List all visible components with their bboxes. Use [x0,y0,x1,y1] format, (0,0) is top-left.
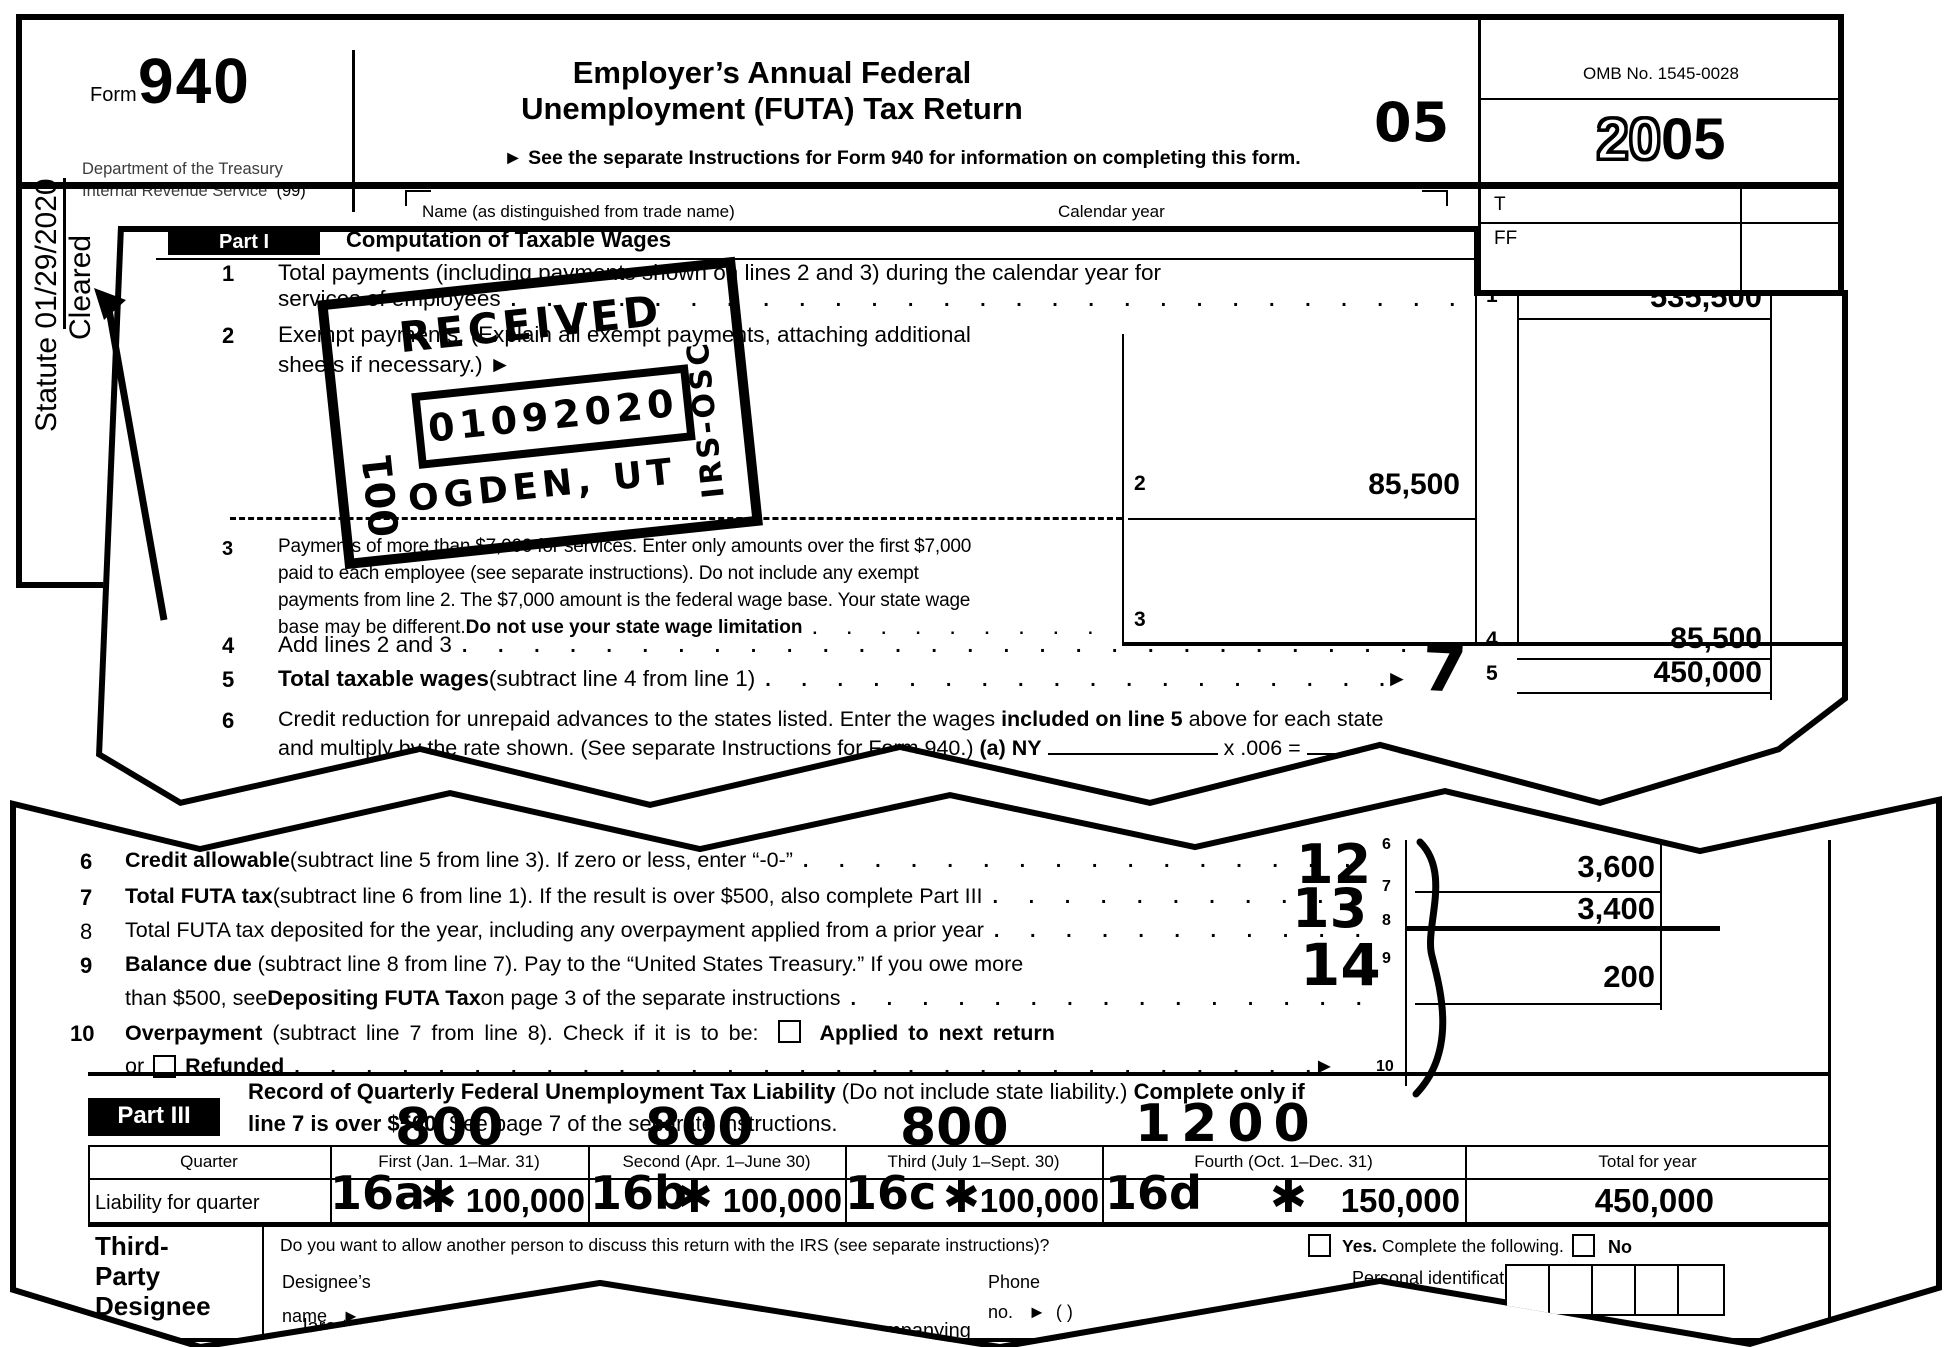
rule [1740,189,1742,290]
line4-number: 4 [222,634,234,659]
line8-number: 8 [80,920,92,945]
line10-number: 10 [70,1022,94,1047]
q3-handwritten-800: 800 [900,1102,1009,1154]
dot-leader: . . . . . . . . . . . . . . . . . . . . … [793,850,1373,872]
part1-badge: Part I [168,229,320,255]
designee-yes-checkbox[interactable] [1308,1234,1331,1257]
line5-arrow: ► [1386,666,1408,691]
name-field-corner-right [1422,190,1448,206]
line3-col: 3 [1134,608,1146,632]
line5-col: 5 [1486,662,1498,686]
see-instructions: ► See the separate Instructions for Form… [352,148,1452,170]
credit-reduction-blank[interactable] [1307,735,1417,755]
third-party-label2: Party [95,1262,160,1291]
line9-text2a: than $500, see [125,986,267,1010]
omb-number: OMB No. 1545-0028 [1478,64,1844,83]
third-party-label3: Designee [95,1292,211,1321]
phone-arrow: ► [1028,1302,1046,1322]
page-code-annotation: 05 [1374,96,1449,150]
q4-handwritten-1200: 1200 [1135,1098,1320,1150]
dot-leader: . . . . . . . . . . . . . . . . . . . . … [755,669,1385,691]
signature-fragment: companying [863,1320,971,1342]
rule [1517,318,1770,320]
liability-row-label: Liability for quarter [95,1192,260,1214]
line5-amount: 450,000 [1522,656,1762,690]
dept-line1: Department of the Treasury [82,160,283,178]
line5-rest: (subtract line 4 from line 1) [489,666,755,691]
line6b-rest: (subtract line 5 from line 3). If zero o… [290,848,793,872]
rule [1122,334,1124,642]
line9-text1: Balance due (subtract line 8 from line 7… [125,952,1023,976]
statute-annotation: Statute 01/29/2020 [30,178,64,432]
line8-amount: 3,400 [1455,892,1655,927]
line9-number: 9 [80,954,92,979]
q2-ref-16b: 16b [590,1170,687,1216]
rule [1415,1003,1660,1005]
line6-text2: and multiply by the rate shown. (See sep… [278,735,1417,760]
stamp-received: RECEIVED [329,280,732,369]
q2-handwritten-800: 800 [645,1102,754,1154]
designee-yes-label: Yes. Complete the following. [1342,1237,1564,1257]
phone-label2: no. ► ( ) [988,1302,1073,1322]
line6b-number: 6 [80,850,92,875]
line9-col: 9 [1382,950,1391,968]
designee-no-label: No [1608,1237,1632,1257]
pin-label2: number (PIN) [1352,1298,1460,1318]
line7-bold: Total FUTA tax [125,884,273,908]
rule [1770,282,1772,700]
q2-check-mark: ✱ [676,1176,713,1220]
line7-number: 7 [80,886,92,911]
line8-handwritten-13: 13 [1292,882,1367,936]
pin-digit-box[interactable] [1591,1264,1639,1316]
rule [1475,282,1477,642]
q3-check-mark: ✱ [943,1176,980,1220]
line4-amount: 85,500 [1522,622,1762,656]
line6b-row: Credit allowable (subtract line 5 from l… [125,848,1373,872]
line8-col: 8 [1382,912,1391,930]
line5-number: 5 [222,668,234,693]
pin-digit-box[interactable] [1505,1264,1553,1316]
q1-check-mark: ✱ [420,1176,457,1220]
stamp-code: 001 [355,451,408,539]
line9-handwritten-14: 14 [1300,936,1381,994]
designee-name-input[interactable] [365,1302,745,1322]
signature-fragment: lare that I hav [303,1316,424,1338]
state-wages-blank[interactable] [1048,735,1218,755]
statute-date: 01/29/2020 [30,178,66,328]
line3-text2: paid to each employee (see separate inst… [278,563,919,584]
q3-ref-16c: 16c [845,1170,936,1216]
applied-label: Applied to next return [819,1021,1054,1045]
rule [1478,222,1844,224]
pin-digit-box[interactable] [1548,1264,1596,1316]
line4-row: Add lines 2 and 3 . . . . . . . . . . . … [278,632,1458,657]
rule [1660,840,1662,1010]
form-label: Form [90,84,137,106]
designee-name-label1: Designee’s [282,1272,371,1292]
line1-number: 1 [222,262,234,287]
form-fragment-part2: 6 Credit allowable (subtract line 5 from… [8,784,1948,1347]
pin-arrow: ► [1470,1290,1490,1312]
form-title-line2: Unemployment (FUTA) Tax Return [362,92,1182,127]
line6-number: 6 [222,709,234,734]
rule [1478,98,1844,100]
q4-check-mark: ✱ [1270,1176,1307,1220]
line7-row: Total FUTA tax (subtract line 6 from lin… [125,884,1373,908]
ff-field-label: FF [1494,228,1517,249]
line7-col: 7 [1382,878,1391,896]
dot-leader: . . . . . . . . . . . . . . . . . . . . … [840,988,1373,1010]
t-field-label: T [1494,194,1506,215]
rule [1517,692,1770,694]
third-party-label1: Third- [95,1232,169,1261]
liability-total: 450,000 [1465,1183,1714,1220]
line9-text2b: Depositing FUTA Tax [267,986,480,1010]
rule [1128,518,1475,520]
rule [1828,840,1831,1320]
line3-text3: payments from line 2. The $7,000 amount … [278,590,970,611]
rule [1517,282,1519,642]
q4-ref-16d: 16d [1105,1170,1202,1216]
line10-text1: Overpayment (subtract line 7 from line 8… [125,1020,1055,1045]
received-stamp: RECEIVED 01092020 OGDEN, UT 001 IRS-OSC [317,257,763,569]
part1-label: Part I [168,231,320,253]
name-field-label[interactable]: Name (as distinguished from trade name) [422,202,735,221]
rule [88,1072,1830,1076]
line2-amount: 85,500 [1160,468,1460,502]
rule [262,1222,264,1340]
table-header-total: Total for year [1465,1152,1830,1171]
line6b-col: 6 [1382,836,1391,854]
designee-no-checkbox[interactable] [1572,1234,1595,1257]
stamp-date: 01092020 [421,381,686,451]
q1-handwritten-800: 800 [395,1102,504,1154]
line5-handwritten-7: 7 [1420,637,1468,703]
line6-text1: Credit reduction for unrepaid advances t… [278,707,1383,731]
pin-label1: Personal identification [1352,1268,1528,1288]
phone-input[interactable]: ( ) [1056,1302,1073,1322]
form-number: 940 [138,46,251,118]
designee-question: Do you want to allow another person to d… [280,1236,1049,1256]
cleared-annotation: Cleared [64,235,98,340]
line8-row: Total FUTA tax deposited for the year, i… [125,918,1373,942]
calendar-year-label[interactable]: Calendar year [1058,202,1165,221]
tax-year: 2005 [1478,108,1844,173]
line8-text: Total FUTA tax deposited for the year, i… [125,918,984,942]
statute-label: Statute [30,337,63,432]
line9-text2c: on page 3 of the separate instructions [481,986,841,1010]
line7-amount: 3,600 [1455,850,1655,885]
signature-fragment: the best of m [1400,1312,1516,1334]
year-bold: 05 [1661,107,1726,172]
line4-text: Add lines 2 and 3 [278,632,452,657]
line3-number: 3 [222,538,233,560]
line6b-bold: Credit allowable [125,848,290,872]
dot-leader: . . . . . . . . . . . . . . . . . . . . … [452,635,1458,657]
form-title-line1: Employer’s Annual Federal [362,56,1182,91]
line4-col: 4 [1486,628,1498,652]
rule [1405,840,1407,1086]
form-fragment-part1: Part I Computation of Taxable Wages 1 To… [96,222,1852,814]
stamp-side-text: IRS-OSC [681,339,731,500]
rule [22,182,1838,189]
part3-label: Part III [88,1103,220,1130]
part3-badge: Part III [88,1098,220,1136]
line9-amount: 200 [1455,960,1655,995]
line5-bold: Total taxable wages [278,666,489,691]
line7-rest: (subtract line 6 from line 1). If the re… [273,884,983,908]
line5-row: Total taxable wages (subtract line 4 fro… [278,666,1408,691]
line9-text2-row: than $500, see Depositing FUTA Tax on pa… [125,986,1373,1010]
pin-digit-box[interactable] [1634,1264,1682,1316]
rule [1405,926,1720,931]
q1-ref-16a: 16a [330,1170,425,1216]
year-outline: 20 [1596,107,1661,172]
line2-col: 2 [1134,472,1146,496]
line2-number: 2 [222,324,234,349]
phone-label1: Phone [988,1272,1040,1292]
scanned-form-940: Statute 01/29/2020 Cleared Form 940 Depa… [0,0,1953,1347]
applied-checkbox[interactable] [778,1020,801,1043]
pin-digit-box[interactable] [1677,1264,1725,1316]
table-header-quarter: Quarter [88,1152,330,1171]
